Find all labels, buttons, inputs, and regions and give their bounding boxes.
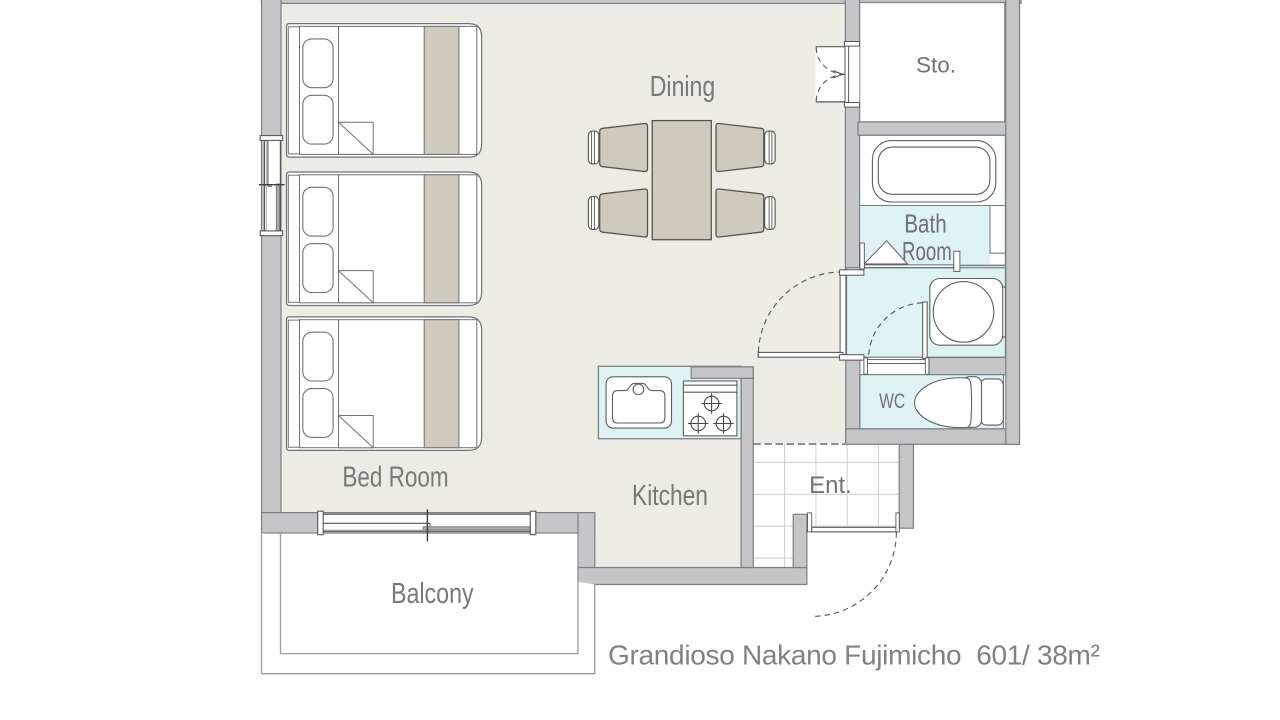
svg-text:Kitchen: Kitchen (632, 480, 708, 512)
svg-text:Dining: Dining (650, 71, 716, 103)
svg-text:Grandioso Nakano Fujimicho 60: Grandioso Nakano Fujimicho 601/ 38m² (608, 639, 1100, 670)
svg-text:WC: WC (879, 390, 905, 413)
svg-text:Bed Room: Bed Room (342, 462, 448, 494)
svg-text:Sto.: Sto. (916, 52, 956, 77)
svg-text:Ent.: Ent. (809, 472, 852, 499)
svg-text:Room: Room (902, 236, 952, 266)
svg-text:Bath: Bath (904, 209, 946, 239)
svg-text:Balcony: Balcony (391, 578, 474, 610)
